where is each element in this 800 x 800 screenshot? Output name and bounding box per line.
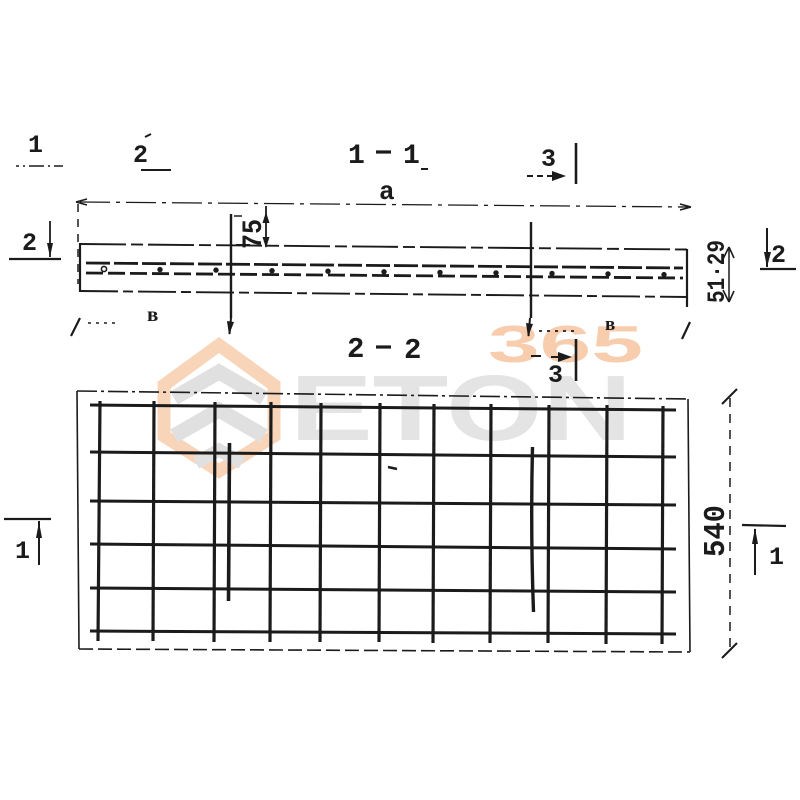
svg-text:1: 1	[28, 131, 43, 160]
svg-text:1: 1	[15, 537, 30, 566]
svg-text:2: 2	[347, 333, 364, 366]
svg-text:365: 365	[488, 316, 643, 374]
svg-text:в: в	[147, 302, 158, 326]
svg-text:3: 3	[541, 145, 556, 174]
svg-text:2: 2	[404, 334, 421, 367]
svg-text:1: 1	[769, 543, 784, 572]
svg-text:a: a	[379, 177, 395, 207]
svg-text:1: 1	[348, 141, 365, 172]
svg-text:3: 3	[548, 361, 563, 390]
svg-text:в: в	[605, 314, 615, 335]
svg-text:2: 2	[771, 241, 786, 270]
svg-text:75: 75	[239, 219, 270, 249]
svg-text:1: 1	[403, 141, 420, 172]
svg-text:540: 540	[699, 505, 734, 557]
svg-text:51·29: 51·29	[703, 240, 732, 303]
svg-text:2: 2	[22, 229, 37, 258]
svg-text:2: 2	[133, 141, 148, 170]
